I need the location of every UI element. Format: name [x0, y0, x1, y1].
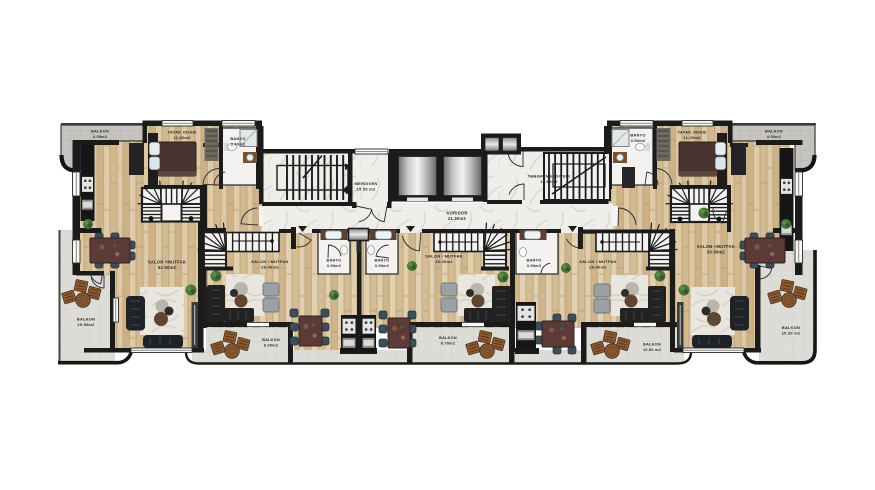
svg-text:15.50m2: 15.50m2 — [77, 322, 95, 327]
svg-text:11.40m2: 11.40m2 — [173, 135, 191, 140]
svg-text:BALKON: BALKON — [765, 130, 783, 134]
svg-text:BALKON: BALKON — [643, 343, 661, 347]
svg-text:15.30 m2: 15.30 m2 — [782, 331, 801, 336]
svg-text:YATAK ODASI: YATAK ODASI — [677, 130, 706, 135]
svg-text:SALON +MUTFAK: SALON +MUTFAK — [148, 260, 186, 265]
svg-text:BANYO: BANYO — [527, 259, 542, 263]
svg-text:26.00m2: 26.00m2 — [435, 259, 453, 264]
svg-text:BANYO: BANYO — [630, 133, 645, 138]
svg-text:YANGIN MERDIVENI: YANGIN MERDIVENI — [528, 174, 571, 179]
svg-text:50.50m2: 50.50m2 — [707, 250, 725, 255]
svg-text:11.40m2: 11.40m2 — [683, 135, 701, 140]
svg-text:4.50m2: 4.50m2 — [93, 135, 107, 139]
svg-text:BANYO: BANYO — [375, 259, 390, 263]
svg-text:MERDIVEN: MERDIVEN — [354, 181, 377, 186]
svg-text:BALKON: BALKON — [782, 325, 800, 330]
svg-text:SALON / MUTFAK: SALON / MUTFAK — [251, 259, 289, 264]
svg-text:10.50 m2: 10.50 m2 — [643, 348, 661, 352]
svg-text:BALKON: BALKON — [439, 336, 457, 340]
svg-text:21.50m2: 21.50m2 — [448, 216, 466, 221]
svg-text:SALON / MUTFAK: SALON / MUTFAK — [579, 259, 617, 264]
svg-text:26.00m2: 26.00m2 — [261, 265, 279, 270]
svg-text:BALKON: BALKON — [91, 130, 109, 134]
svg-text:SALON +MUTFAK: SALON +MUTFAK — [697, 244, 735, 249]
svg-text:YATAK ODASI: YATAK ODASI — [167, 130, 196, 135]
svg-text:3.40m2: 3.40m2 — [231, 142, 246, 147]
svg-text:11.50m2: 11.50m2 — [540, 179, 558, 184]
svg-text:3.50m2: 3.50m2 — [631, 138, 646, 143]
svg-text:3.50m2: 3.50m2 — [327, 264, 341, 268]
svg-text:52.50m2: 52.50m2 — [158, 265, 176, 270]
svg-text:4.50m2: 4.50m2 — [767, 135, 781, 139]
svg-text:9.00m2: 9.00m2 — [264, 344, 278, 348]
svg-text:15.50 m2: 15.50 m2 — [357, 187, 376, 192]
svg-text:8.70m2: 8.70m2 — [441, 342, 455, 346]
svg-text:BALKON: BALKON — [262, 338, 280, 342]
svg-text:KORIDOR: KORIDOR — [446, 211, 467, 216]
svg-text:BALKON: BALKON — [77, 317, 95, 322]
svg-text:BANYO: BANYO — [327, 259, 342, 263]
svg-text:3.50m2: 3.50m2 — [375, 264, 389, 268]
svg-text:3.50m2: 3.50m2 — [527, 264, 541, 268]
svg-text:26.00m2: 26.00m2 — [589, 265, 607, 270]
svg-text:SALON / MUTFAK: SALON / MUTFAK — [425, 254, 463, 259]
svg-text:BANYO: BANYO — [230, 136, 245, 141]
